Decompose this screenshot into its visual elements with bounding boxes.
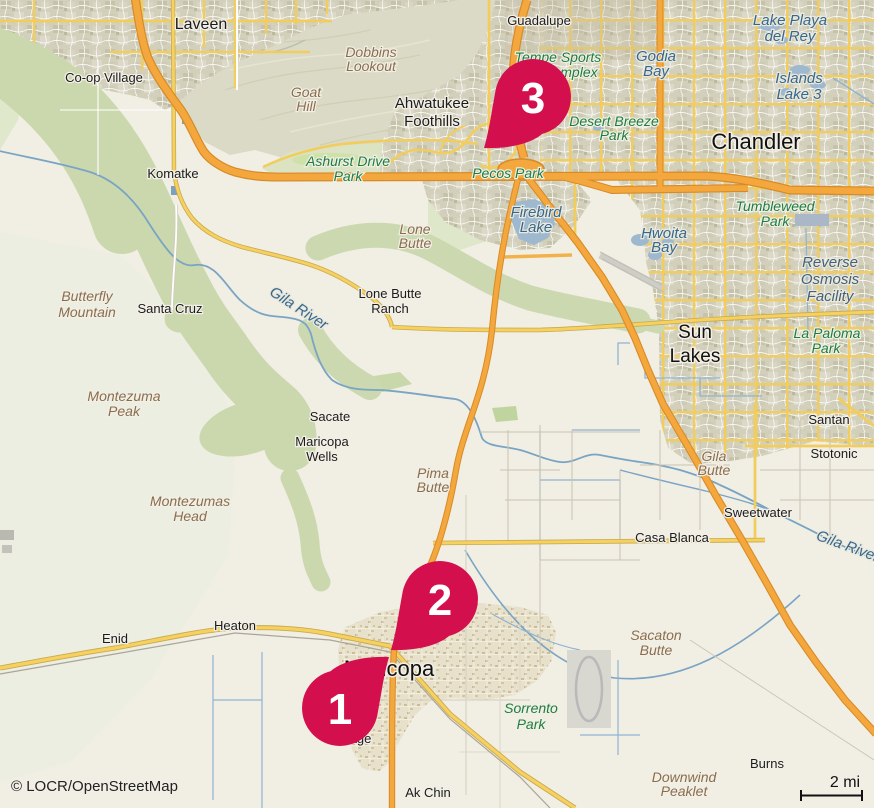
svg-text:Guadalupe: Guadalupe [507, 13, 571, 28]
svg-text:Co-op Village: Co-op Village [65, 70, 143, 85]
svg-text:Foothills: Foothills [404, 113, 460, 130]
svg-text:Sweetwater: Sweetwater [724, 505, 793, 520]
svg-text:Reverse: Reverse [802, 254, 858, 271]
svg-text:Ashurst Drive: Ashurst Drive [305, 153, 390, 169]
svg-text:Pecos Park: Pecos Park [472, 165, 545, 181]
svg-text:Komatke: Komatke [147, 166, 198, 181]
svg-text:Sacate: Sacate [310, 409, 350, 424]
svg-text:Montezumas: Montezumas [150, 493, 230, 509]
svg-text:La Paloma: La Paloma [794, 325, 861, 341]
svg-text:Butte: Butte [417, 479, 450, 495]
svg-text:Santa Cruz: Santa Cruz [137, 301, 202, 316]
svg-text:Maricopa: Maricopa [295, 434, 349, 449]
svg-text:Heaton: Heaton [214, 618, 256, 633]
svg-text:Peaklet: Peaklet [661, 783, 709, 799]
svg-text:Santan: Santan [808, 412, 849, 427]
svg-text:Lake: Lake [520, 219, 553, 236]
svg-text:2 mi: 2 mi [830, 774, 860, 791]
svg-text:Park: Park [812, 340, 842, 356]
svg-text:Lookout: Lookout [346, 58, 397, 74]
svg-text:Facility: Facility [807, 288, 855, 305]
svg-text:Enid: Enid [102, 631, 128, 646]
svg-text:Ak Chin: Ak Chin [405, 785, 451, 800]
svg-text:Head: Head [173, 508, 208, 524]
svg-text:Lake Playa: Lake Playa [753, 12, 827, 29]
svg-text:Butterfly: Butterfly [61, 288, 113, 304]
svg-text:Butte: Butte [698, 462, 731, 478]
svg-text:Islands: Islands [775, 70, 823, 87]
svg-text:Bay: Bay [643, 63, 670, 80]
svg-text:Bay: Bay [651, 239, 678, 256]
svg-text:Laveen: Laveen [175, 16, 228, 33]
svg-text:Park: Park [761, 213, 791, 229]
svg-text:Casa Blanca: Casa Blanca [635, 530, 709, 545]
svg-text:Park: Park [517, 716, 547, 732]
svg-text:Hill: Hill [296, 98, 316, 114]
svg-text:Osmosis: Osmosis [801, 271, 860, 288]
svg-text:del Rey: del Rey [765, 28, 817, 45]
svg-text:1: 1 [328, 685, 352, 734]
svg-text:Chandler: Chandler [711, 129, 800, 154]
svg-text:Peak: Peak [108, 403, 141, 419]
svg-text:Mountain: Mountain [58, 304, 116, 320]
svg-text:Tumbleweed: Tumbleweed [735, 198, 815, 214]
svg-text:2: 2 [428, 576, 452, 625]
svg-text:3: 3 [521, 74, 545, 123]
svg-text:Wells: Wells [306, 449, 338, 464]
svg-text:Ranch: Ranch [371, 301, 409, 316]
svg-text:Butte: Butte [399, 235, 432, 251]
svg-text:Ahwatukee: Ahwatukee [395, 95, 469, 112]
svg-text:Butte: Butte [640, 642, 673, 658]
svg-text:Lakes: Lakes [670, 346, 721, 367]
svg-text:Stotonic: Stotonic [811, 446, 858, 461]
svg-text:Lake 3: Lake 3 [776, 86, 822, 103]
svg-text:Burns: Burns [750, 756, 784, 771]
svg-text:Sacaton: Sacaton [630, 627, 682, 643]
svg-text:Montezuma: Montezuma [87, 388, 160, 404]
svg-text:Park: Park [600, 127, 630, 143]
svg-text:Sun: Sun [678, 322, 712, 343]
svg-text:Sorrento: Sorrento [504, 700, 558, 716]
svg-text:Park: Park [334, 168, 364, 184]
svg-text:Lone Butte: Lone Butte [359, 286, 422, 301]
svg-text:© LOCR/OpenStreetMap: © LOCR/OpenStreetMap [11, 778, 178, 795]
